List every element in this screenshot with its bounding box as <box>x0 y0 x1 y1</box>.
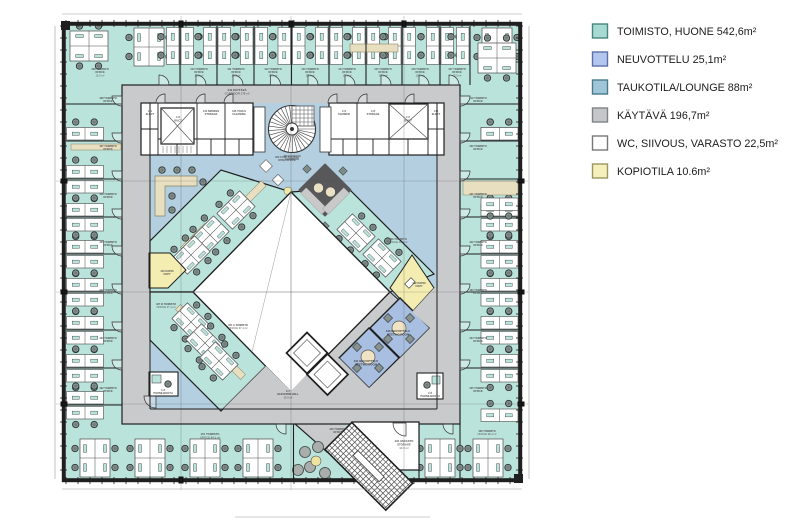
svg-text:KÄYTÄVÄ 196,7m²: KÄYTÄVÄ 196,7m² <box>617 110 710 122</box>
svg-text:OFFICE: OFFICE <box>473 99 483 103</box>
svg-text:OFFICE: OFFICE <box>103 243 113 247</box>
svg-text:OFFICE: OFFICE <box>103 291 113 295</box>
svg-text:15.5 m²: 15.5 m² <box>306 73 315 77</box>
svg-text:OFFICE 84.1 m²: OFFICE 84.1 m² <box>200 435 221 439</box>
svg-text:15.5 m²: 15.5 m² <box>232 73 241 77</box>
svg-text:DUCT: DUCT <box>404 118 412 122</box>
svg-text:OFFICE 37.1 m²: OFFICE 37.1 m² <box>228 326 247 330</box>
svg-text:OFFICE: OFFICE <box>103 147 113 151</box>
svg-text:OFFICE: OFFICE <box>103 99 113 103</box>
svg-text:15.5 m²: 15.5 m² <box>416 73 425 77</box>
svg-text:OFFICE: OFFICE <box>103 389 113 393</box>
svg-text:SHOWER: SHOWER <box>338 112 350 116</box>
svg-text:OFFICE: OFFICE <box>103 339 113 343</box>
svg-text:MEETING ROOM: MEETING ROOM <box>355 362 378 366</box>
svg-text:15.5 m²: 15.5 m² <box>453 73 462 77</box>
svg-text:OFFICE: OFFICE <box>473 195 483 199</box>
svg-text:15.5 m²: 15.5 m² <box>195 73 204 77</box>
svg-text:WC, SIIVOUS, VARASTO 22,5m²: WC, SIIVOUS, VARASTO 22,5m² <box>617 138 778 150</box>
svg-text:COPY: COPY <box>163 272 171 276</box>
svg-text:OFFICE: OFFICE <box>473 243 483 247</box>
svg-text:OFFICE: OFFICE <box>473 339 483 343</box>
svg-text:OFFICE: OFFICE <box>473 389 483 393</box>
svg-text:OFFICE: OFFICE <box>103 195 113 199</box>
svg-text:TOIMISTO, HUONE 542,6m²: TOIMISTO, HUONE 542,6m² <box>617 26 757 38</box>
svg-text:OPEN OFFICE: OPEN OFFICE <box>278 158 296 162</box>
svg-text:OFFICE: OFFICE <box>333 430 343 434</box>
svg-text:STORAGE: STORAGE <box>367 112 380 116</box>
svg-text:15.5 m²: 15.5 m² <box>343 73 352 77</box>
svg-text:PHONE BOOTH: PHONE BOOTH <box>153 391 172 395</box>
svg-text:OFFICE: OFFICE <box>473 147 483 151</box>
svg-text:CORRIDOR 178 m²: CORRIDOR 178 m² <box>225 91 250 95</box>
svg-text:OFFICE: OFFICE <box>473 291 483 295</box>
svg-text:MEETING ROOM: MEETING ROOM <box>387 332 410 336</box>
svg-text:15.5 m²: 15.5 m² <box>96 73 105 77</box>
svg-text:TAUKOTILA/LOUNGE 88m²: TAUKOTILA/LOUNGE 88m² <box>617 82 753 94</box>
svg-text:NEUVOTTELU 25,1m²: NEUVOTTELU 25,1m² <box>617 54 727 66</box>
svg-text:ELECT: ELECT <box>432 112 441 116</box>
svg-text:15.5 m²: 15.5 m² <box>379 73 388 77</box>
svg-text:COPY: COPY <box>415 284 423 288</box>
svg-text:OFFICE 27.1 m²: OFFICE 27.1 m² <box>156 305 175 309</box>
svg-text:OFFICE 28.1 m²: OFFICE 28.1 m² <box>477 432 496 436</box>
svg-text:CLEANING: CLEANING <box>232 112 246 116</box>
svg-text:STORAGE: STORAGE <box>205 112 218 116</box>
svg-text:OFFICE 18.4 m²: OFFICE 18.4 m² <box>388 240 407 244</box>
svg-text:15.5 m²: 15.5 m² <box>269 73 278 77</box>
svg-text:KOPIOTILA 10.6m²: KOPIOTILA 10.6m² <box>617 166 710 178</box>
